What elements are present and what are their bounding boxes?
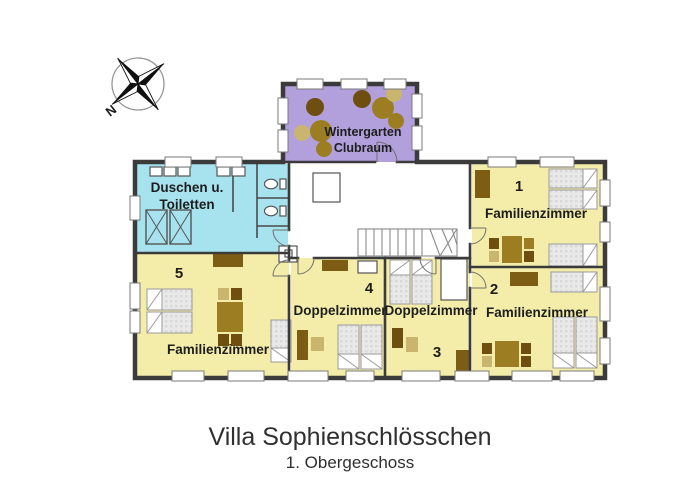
bed (551, 272, 597, 292)
sanitary-label-line1: Duschen u. (151, 180, 224, 195)
toilet-icon (265, 206, 278, 216)
room1-label: Familienzimmer (485, 206, 588, 221)
desk (406, 337, 418, 352)
bed (553, 317, 574, 368)
room4-label: Doppelzimmer (293, 303, 387, 318)
chair (482, 356, 492, 367)
room2-number: 2 (490, 281, 498, 298)
chair (482, 343, 492, 354)
room3-label: Doppelzimmer (384, 303, 478, 318)
table (502, 236, 522, 263)
chair (489, 238, 499, 249)
room3-closet (441, 259, 467, 300)
wardrobe (456, 350, 470, 372)
table (495, 341, 519, 367)
room5-label: Familienzimmer (167, 342, 270, 357)
chair (521, 343, 531, 354)
bed (147, 289, 192, 310)
bed (576, 317, 597, 368)
room5-number: 5 (175, 265, 183, 282)
toilet-icon (265, 179, 278, 189)
room2-label: Familienzimmer (486, 305, 589, 320)
wardrobe (213, 254, 243, 267)
chair (218, 288, 229, 300)
bed (338, 325, 359, 369)
compass-north-label: N (103, 102, 120, 120)
sink-icon (150, 167, 162, 176)
wintergarten-label-line1: Wintergarten (325, 125, 402, 139)
wardrobe (322, 260, 348, 271)
bed (549, 244, 597, 266)
chair (524, 251, 534, 262)
room1-number: 1 (515, 178, 523, 195)
room4-closet (358, 261, 377, 273)
caption: Villa Sophienschlösschen 1. Obergeschoss (208, 423, 491, 472)
sink-icon (178, 167, 190, 176)
sink-icon (217, 167, 230, 176)
chair (231, 288, 242, 300)
room4-number: 4 (365, 280, 374, 297)
compass-rose-icon: N (92, 38, 185, 131)
floorplan-drawing: N Wintergarten Clubraum Duschen u. Toile… (0, 0, 700, 500)
sanitary-label-line2: Toiletten (159, 197, 214, 212)
bed (361, 325, 382, 369)
plan-title: Villa Sophienschlösschen (208, 423, 491, 451)
floorplan-page: N Wintergarten Clubraum Duschen u. Toile… (0, 0, 700, 500)
table (217, 302, 243, 332)
bed (390, 260, 410, 304)
sink-icon (232, 167, 245, 176)
chair (489, 251, 499, 262)
wardrobe (475, 170, 490, 198)
wardrobe (510, 272, 538, 286)
hall-closet (313, 173, 340, 202)
bed (549, 169, 597, 188)
wardrobe (392, 328, 403, 348)
wardrobe (297, 330, 308, 360)
staircase (358, 229, 457, 256)
chair (521, 356, 531, 367)
plan-subtitle: 1. Obergeschoss (286, 453, 415, 472)
bed (147, 312, 192, 333)
sink-icon (164, 167, 176, 176)
room3-number: 3 (433, 344, 441, 361)
desk (311, 337, 324, 351)
chair (524, 238, 534, 249)
wintergarten-label-line2: Clubraum (334, 141, 392, 155)
